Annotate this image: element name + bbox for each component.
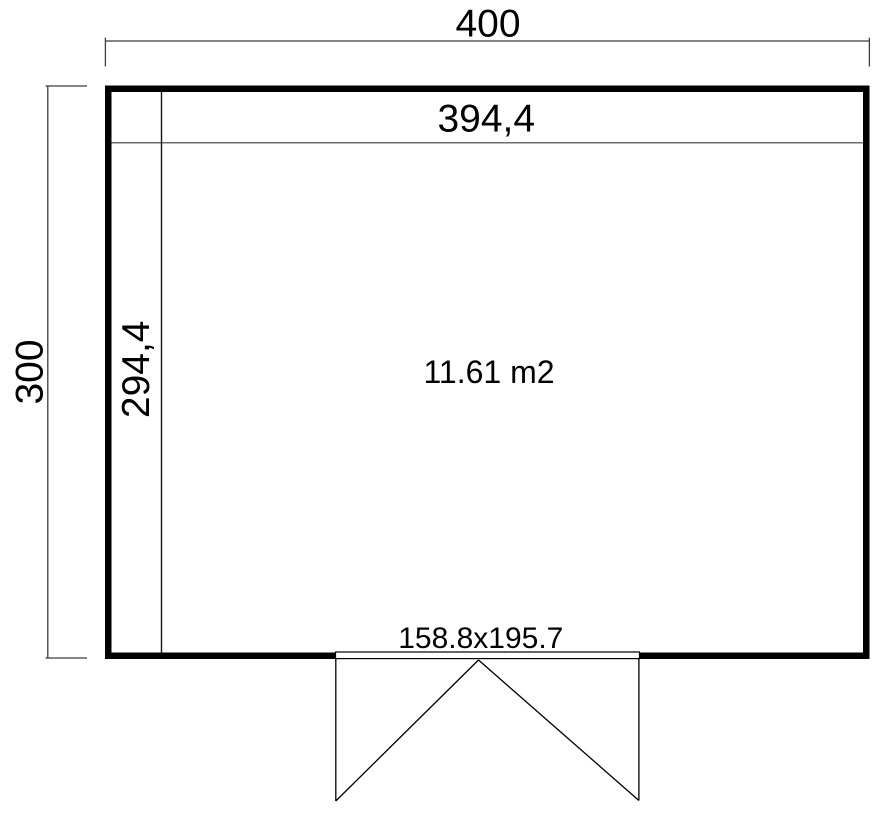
svg-text:400: 400 bbox=[455, 3, 520, 46]
svg-text:300: 300 bbox=[8, 339, 51, 404]
svg-text:394,4: 394,4 bbox=[437, 97, 535, 140]
svg-text:11.61 m2: 11.61 m2 bbox=[423, 354, 554, 390]
svg-text:294,4: 294,4 bbox=[115, 320, 158, 418]
svg-text:158.8x195.7: 158.8x195.7 bbox=[398, 622, 563, 655]
